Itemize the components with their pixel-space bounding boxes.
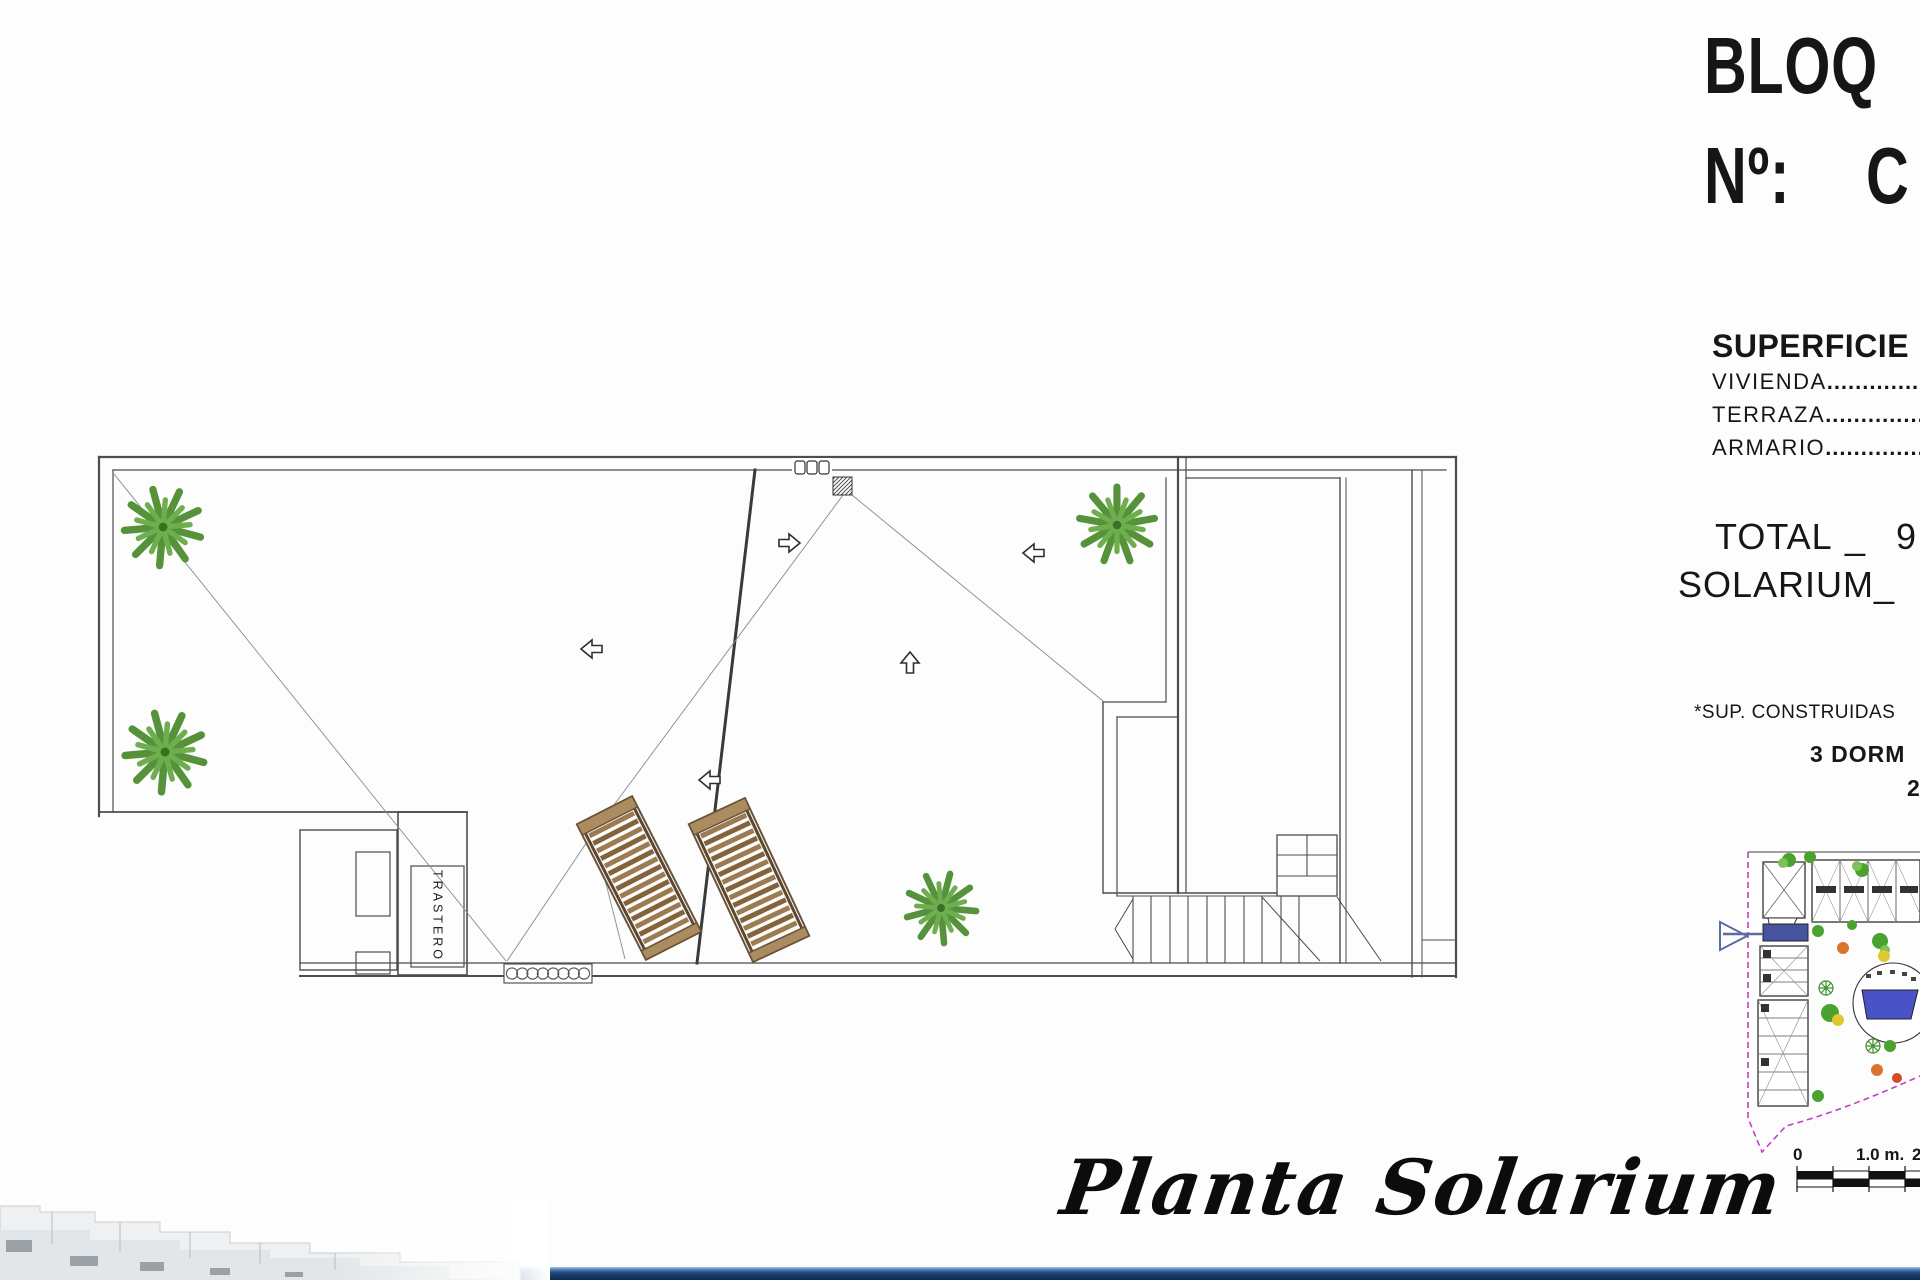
surfaces-title: SUPERFICIE (1712, 330, 1909, 364)
sheet-caption: Planta Solarium (1056, 1148, 1687, 1228)
unit-number-label: Nº: (1704, 134, 1790, 218)
total-value: 9 (1896, 518, 1917, 556)
building-photo (0, 1200, 550, 1280)
direction-arrow-icon (901, 652, 919, 673)
bathrooms-note: 2 (1907, 776, 1920, 800)
scale-end-label: 2 (1912, 1146, 1920, 1164)
vent-grille-icon (792, 458, 832, 476)
construction-note: *SUP. CONSTRUIDAS (1694, 703, 1895, 723)
roof-drain-icon (833, 477, 852, 495)
unit-pointer-icon (1720, 922, 1747, 950)
site-minimap (1720, 851, 1920, 1152)
palm-tree-icon (1071, 480, 1162, 571)
plan-sheet: BLOQ Nº: C SUPERFICIE VIVIENDA..........… (0, 0, 1920, 1280)
scale-mid-label: 1.0 m. (1856, 1146, 1904, 1164)
direction-arrow-icon (779, 534, 800, 552)
sun-lounger-icon (577, 796, 701, 960)
storage-room-label: TRASTERO (430, 870, 443, 962)
surface-row-armario: ARMARIO...................... (1712, 436, 1920, 459)
bedrooms-note: 3 DORM (1810, 742, 1905, 766)
solarium-label: SOLARIUM_ (1678, 566, 1895, 604)
surface-row-vivienda: VIVIENDA...................... (1712, 370, 1920, 393)
direction-arrow-icon (1023, 544, 1044, 562)
scale-bar (1797, 1166, 1920, 1192)
highlighted-unit (1763, 924, 1808, 941)
unit-number-value: C (1866, 134, 1909, 218)
palm-tree-icon (109, 697, 219, 807)
total-separator: _ (1845, 518, 1866, 556)
floor-plan-drawing (0, 0, 1920, 1280)
scale-zero-label: 0 (1793, 1146, 1802, 1164)
hedge-planter (504, 964, 592, 983)
direction-arrow-icon (581, 640, 602, 658)
palm-tree-icon (896, 863, 984, 951)
block-title: BLOQ (1704, 24, 1878, 108)
surface-row-terraza: TERRAZA...................... (1712, 403, 1920, 426)
total-label: TOTAL (1715, 518, 1833, 556)
